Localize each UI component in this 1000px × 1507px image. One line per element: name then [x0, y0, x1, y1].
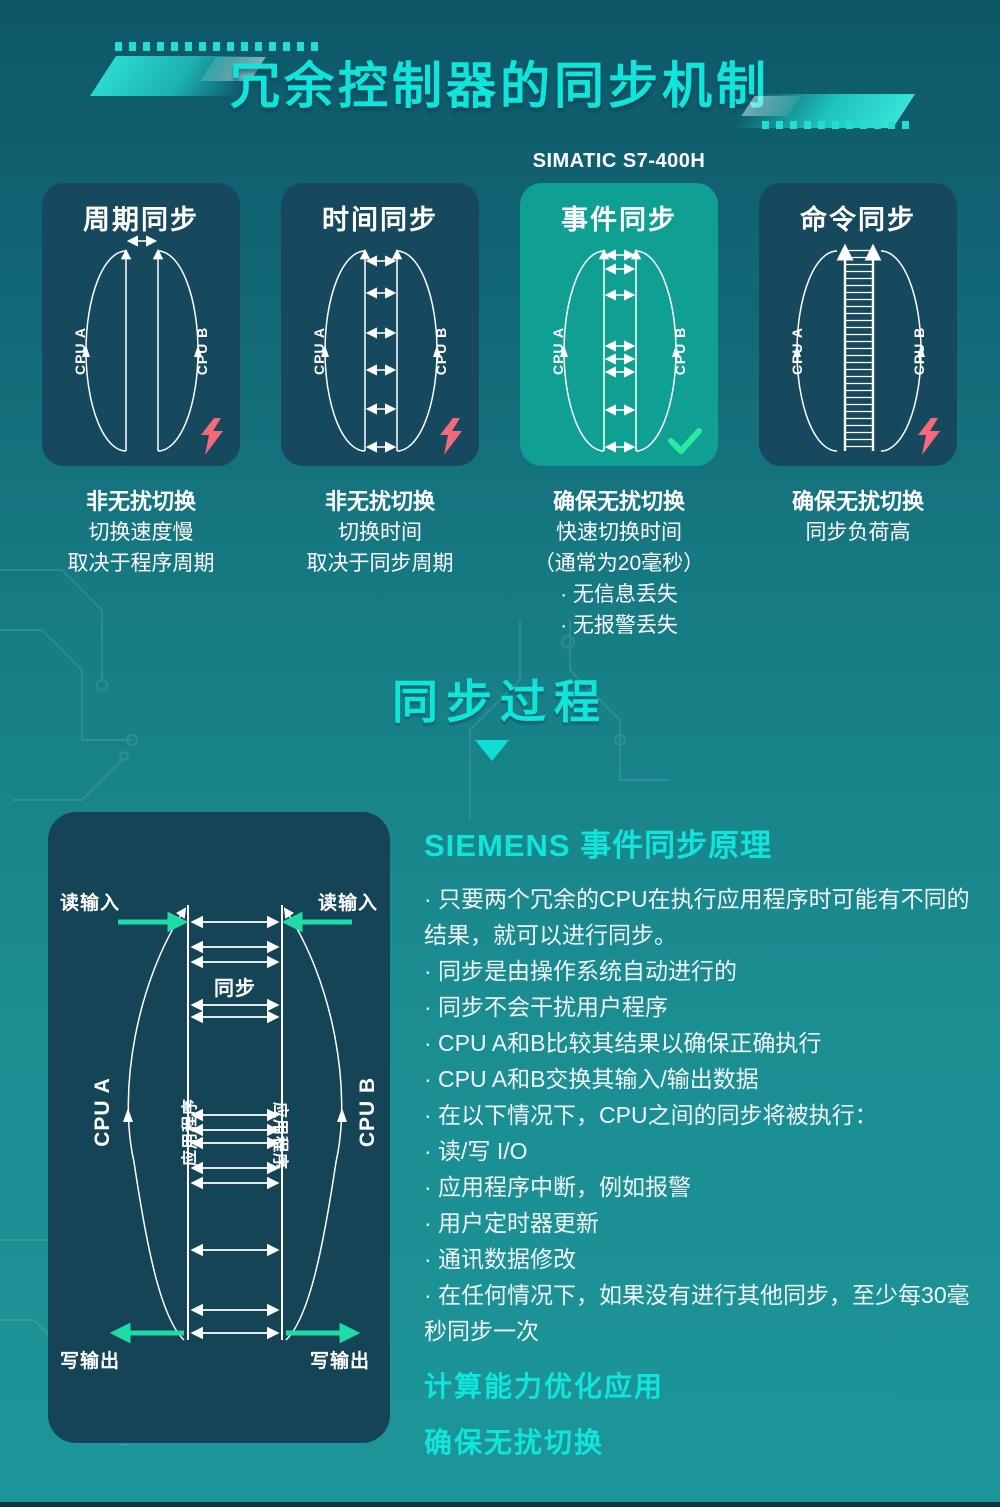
description-line: 快速切换时间	[520, 517, 718, 548]
cpu-b-label: CPU B	[356, 1072, 380, 1152]
bullet-item: · 应用程序中断，例如报警	[424, 1169, 990, 1205]
description-line: 取决于程序周期	[42, 548, 240, 579]
highlight-line: 确保无扰切换	[424, 1421, 990, 1461]
card-event-sync: 事件同步 CPU A CPU B	[520, 183, 718, 466]
simatic-label: SIMATIC S7-400H	[520, 150, 718, 173]
cpu-b-label: CPU B	[194, 316, 210, 386]
bullet-item: · 在任何情况下，如果没有进行其他同步，至少每30毫秒同步一次	[424, 1277, 990, 1349]
read-input-label-right: 读输入	[318, 888, 378, 915]
description-line: · 无信息丢失	[520, 579, 718, 610]
card-cycle-sync: 周期同步 CPU A CPU B	[42, 183, 240, 466]
bullet-item: · 同步是由操作系统自动进行的	[424, 953, 990, 989]
infographic: 冗余控制器的同步机制 SIMATIC S7-400H 周期同步 CPU A CP…	[0, 0, 1000, 1507]
header-dots-right	[762, 121, 912, 129]
application-program-label-left: 应用程序	[176, 1096, 200, 1168]
card-title: 周期同步	[42, 198, 240, 237]
cpu-b-label: CPU B	[672, 316, 688, 386]
description-line: · 无报警丢失	[520, 610, 718, 641]
card-description: 非无扰切换 切换速度慢 取决于程序周期	[42, 487, 240, 579]
bullet-item: · 同步不会干扰用户程序	[424, 989, 990, 1025]
bullet-item: · CPU A和B比较其结果以确保正确执行	[424, 1025, 990, 1061]
process-card: 读输入 读输入 同步 应用程序 应用程序 CPU A CPU B 写输出 写输出	[48, 812, 390, 1443]
bullet-item: · 读/写 I/O	[424, 1133, 990, 1169]
card-title: 命令同步	[759, 198, 957, 237]
bullet-item: · 只要两个冗余的CPU在执行应用程序时可能有不同的结果，就可以进行同步。	[424, 881, 990, 953]
write-output-label-right: 写输出	[310, 1346, 370, 1373]
lightning-icon	[916, 418, 942, 455]
card-description: 非无扰切换 切换时间 取决于同步周期	[281, 487, 479, 579]
cpu-a-label: CPU A	[311, 316, 327, 386]
cpu-b-label: CPU B	[911, 316, 927, 386]
description-line: 取决于同步周期	[281, 548, 479, 579]
read-input-label-left: 读输入	[60, 888, 120, 915]
card-time-sync: 时间同步 CPU A CPU B	[281, 183, 479, 466]
card-command-sync: 命令同步 CPU A CPU B	[759, 183, 957, 466]
card-description: 确保无扰切换 快速切换时间 （通常为20毫秒） · 无信息丢失 · 无报警丢失	[520, 487, 718, 641]
principle-section: SIEMENS 事件同步原理 · 只要两个冗余的CPU在执行应用程序时可能有不同…	[424, 820, 990, 1461]
cpu-b-label: CPU B	[433, 316, 449, 386]
lightning-icon	[199, 418, 225, 455]
description-heading: 非无扰切换	[42, 487, 240, 517]
bullet-item: · 通讯数据修改	[424, 1241, 990, 1277]
description-heading: 确保无扰切换	[759, 487, 957, 517]
check-icon	[667, 428, 703, 455]
cpu-a-label: CPU A	[91, 1072, 115, 1152]
bottom-edge	[0, 1502, 1000, 1507]
section-title: 同步过程	[0, 666, 1000, 732]
description-line: 切换速度慢	[42, 517, 240, 548]
application-program-label-right: 应用程序	[270, 1100, 294, 1172]
write-output-label-left: 写输出	[60, 1346, 120, 1373]
bullet-item: · CPU A和B交换其输入/输出数据	[424, 1061, 990, 1097]
highlight-line: 计算能力优化应用	[424, 1365, 990, 1405]
lightning-icon	[438, 418, 464, 455]
description-heading: 确保无扰切换	[520, 487, 718, 517]
bullet-item: · 在以下情况下，CPU之间的同步将被执行：	[424, 1097, 990, 1133]
sync-label: 同步	[195, 972, 275, 1001]
description-line: （通常为20毫秒）	[520, 548, 718, 579]
bullet-item: · 用户定时器更新	[424, 1205, 990, 1241]
cpu-a-label: CPU A	[550, 316, 566, 386]
card-title: 时间同步	[281, 198, 479, 237]
cpu-a-label: CPU A	[789, 316, 805, 386]
description-line: 同步负荷高	[759, 517, 957, 548]
card-title: 事件同步	[520, 198, 718, 237]
principle-title: SIEMENS 事件同步原理	[424, 820, 990, 865]
description-line: 切换时间	[281, 517, 479, 548]
cpu-a-label: CPU A	[72, 316, 88, 386]
description-heading: 非无扰切换	[281, 487, 479, 517]
down-arrow-icon	[475, 740, 509, 761]
card-description: 确保无扰切换 同步负荷高	[759, 487, 957, 548]
